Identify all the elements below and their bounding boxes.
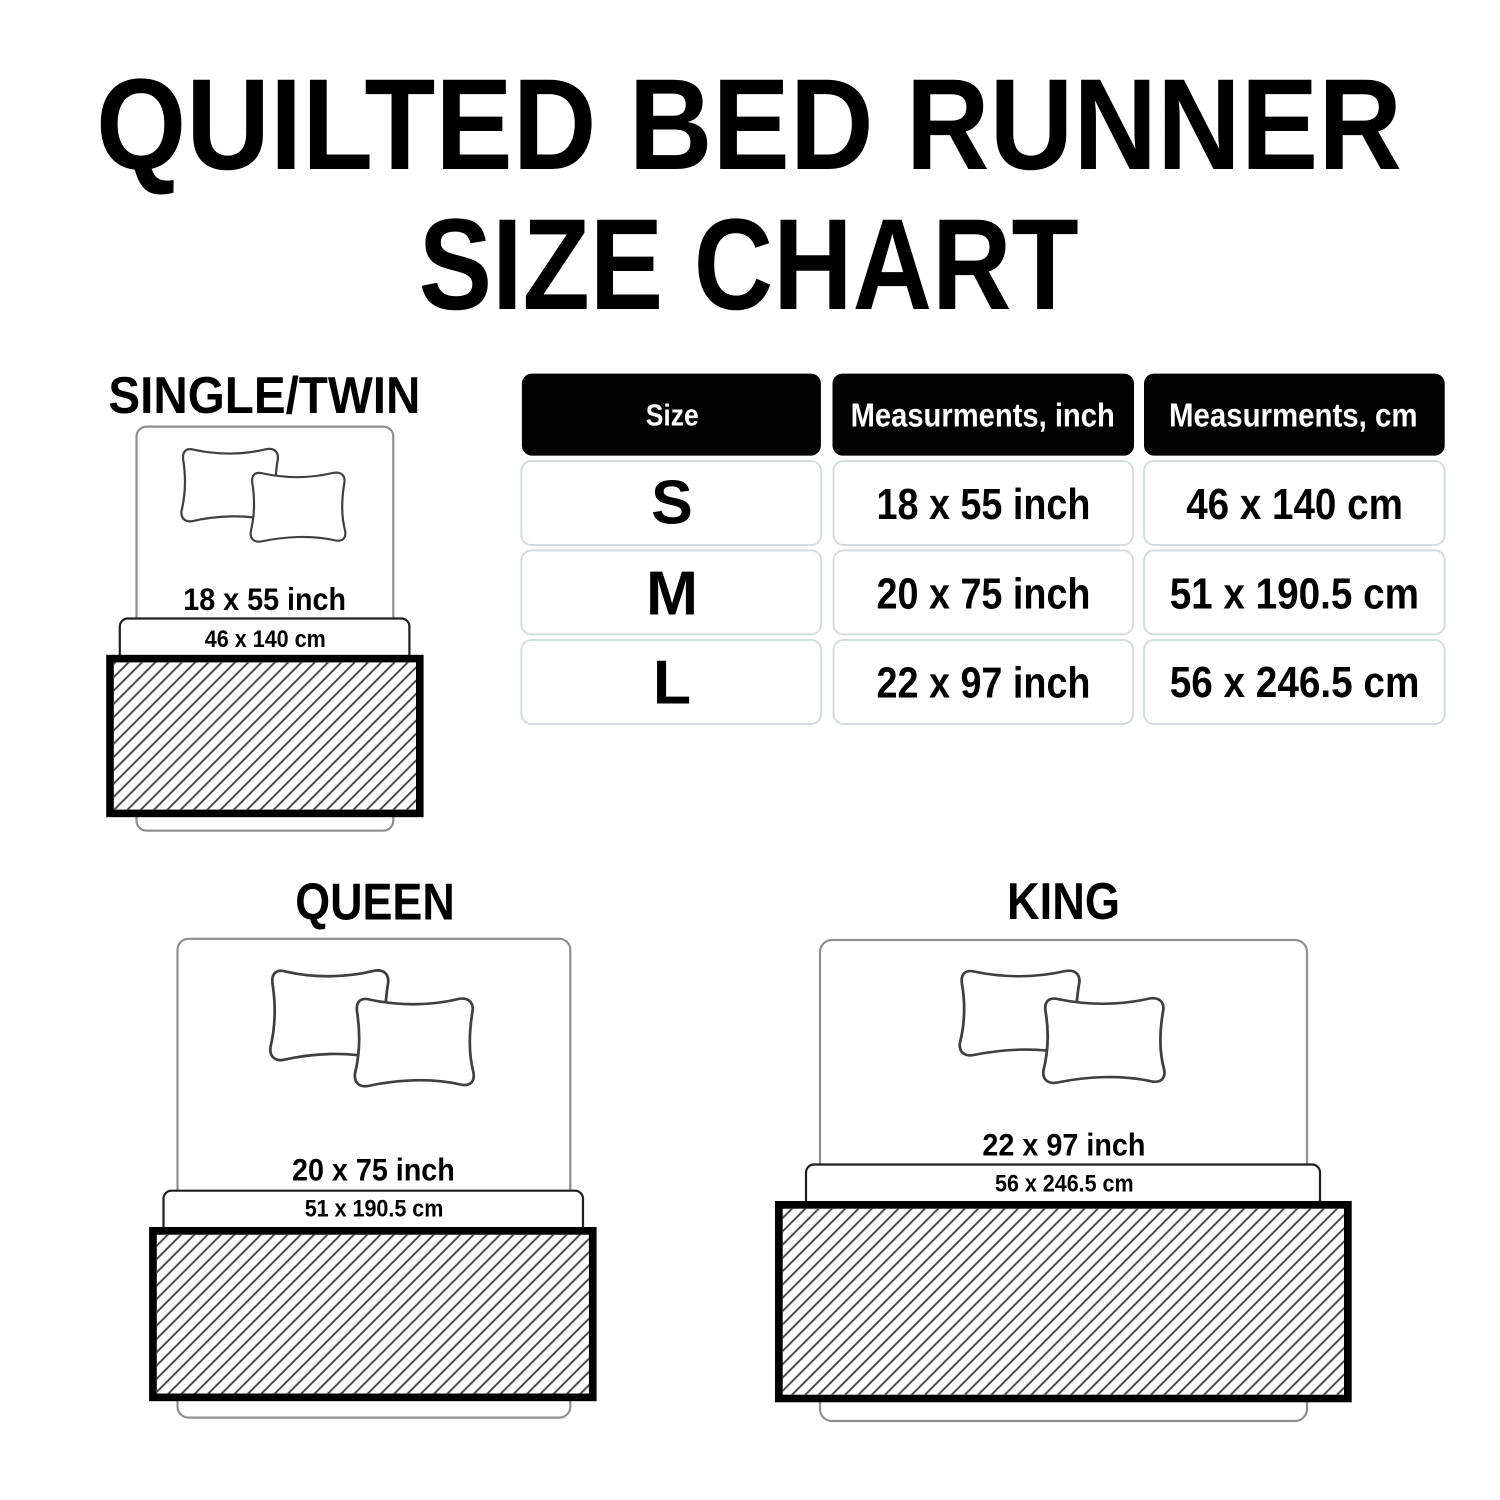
svg-text:SINGLE/TWIN: SINGLE/TWIN <box>108 366 420 424</box>
svg-text:22 x 97 inch: 22 x 97 inch <box>877 659 1091 707</box>
svg-text:46 x 140 cm: 46 x 140 cm <box>1186 481 1403 529</box>
svg-text:46 x 140 cm: 46 x 140 cm <box>205 626 326 653</box>
svg-text:KING: KING <box>1007 872 1120 930</box>
svg-text:18 x 55 inch: 18 x 55 inch <box>877 481 1091 529</box>
svg-text:51 x 190.5 cm: 51 x 190.5 cm <box>1170 570 1419 618</box>
svg-text:20 x 75 inch: 20 x 75 inch <box>292 1153 455 1188</box>
svg-text:22 x 97 inch: 22 x 97 inch <box>982 1128 1145 1163</box>
svg-text:51 x 190.5 cm: 51 x 190.5 cm <box>305 1196 444 1223</box>
svg-text:56 x 246.5 cm: 56 x 246.5 cm <box>1170 659 1420 707</box>
svg-text:S: S <box>651 468 693 538</box>
svg-text:20 x 75 inch: 20 x 75 inch <box>877 571 1091 619</box>
svg-text:Size: Size <box>646 400 699 433</box>
svg-text:56 x 246.5 cm: 56 x 246.5 cm <box>995 1170 1134 1197</box>
svg-text:18 x 55 inch: 18 x 55 inch <box>183 582 346 617</box>
svg-text:M: M <box>646 559 698 629</box>
svg-text:SIZE CHART: SIZE CHART <box>419 191 1079 337</box>
svg-text:QUEEN: QUEEN <box>295 872 455 930</box>
svg-text:Measurments, cm: Measurments, cm <box>1169 397 1418 434</box>
svg-text:Measurments, inch: Measurments, inch <box>851 397 1115 434</box>
svg-text:L: L <box>653 647 691 717</box>
svg-text:QUILTED BED RUNNER: QUILTED BED RUNNER <box>96 51 1402 197</box>
